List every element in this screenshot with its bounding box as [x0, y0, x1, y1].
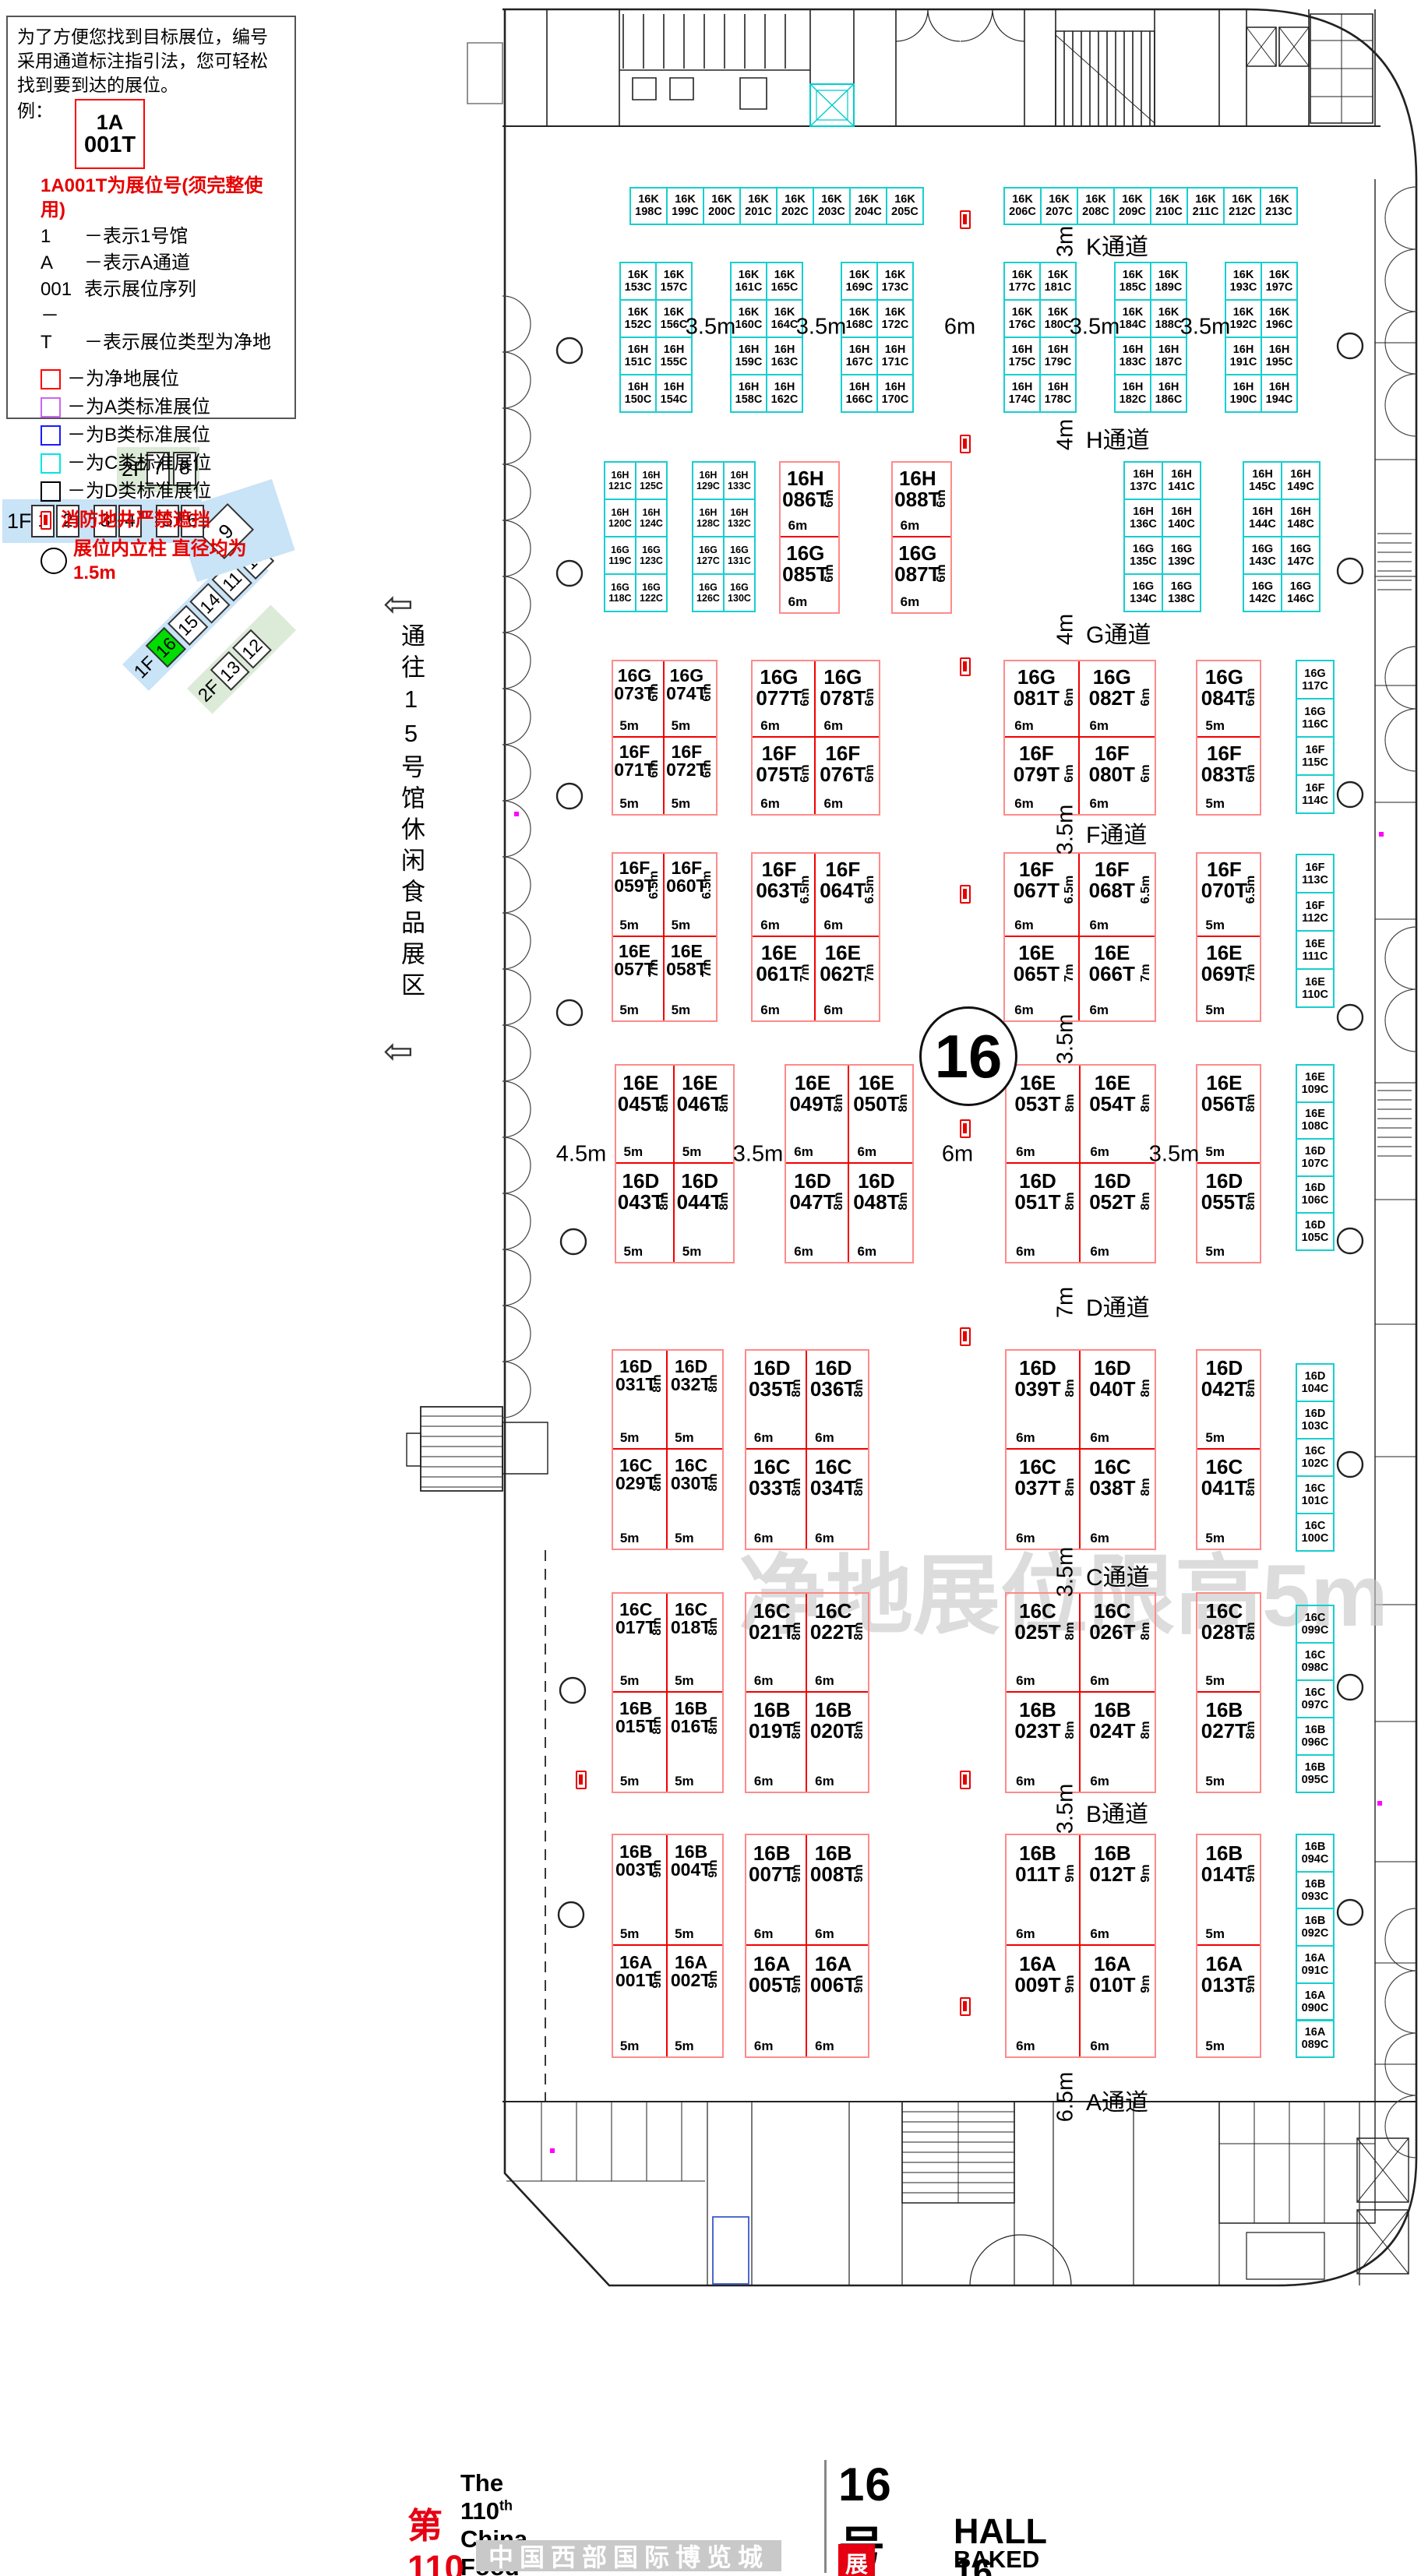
booth-16c101c: 16C101C	[1296, 1475, 1335, 1514]
booth-block: 16C028T8m5m16B027T8m5m	[1196, 1592, 1261, 1793]
booth-16d035t: 16D035T8m6m	[746, 1351, 807, 1450]
booth-16d042t: 16D042T8m5m	[1197, 1351, 1260, 1450]
booth-16f114c: 16F114C	[1296, 774, 1335, 814]
booth-16k202c: 16K202C	[776, 187, 814, 225]
booth-16g146c: 16G146C	[1281, 573, 1321, 612]
booth-16e069t: 16E069T7m5m	[1197, 937, 1260, 1020]
aisle-name-label: K通道	[1086, 227, 1148, 262]
booth-16e046t: 16E046T8m5m	[675, 1066, 733, 1164]
booth-16k177c: 16K177C	[1003, 262, 1041, 301]
booth-16g131c: 16G131C	[723, 536, 756, 575]
booth-block: 16E045T8m5m16E046T8m5m16D043T8m5m16D044T…	[615, 1064, 735, 1263]
booth-16f071t: 16F071T6m5m	[613, 738, 665, 814]
booth-16h154c: 16H154C	[655, 374, 693, 413]
booth-16b093c: 16B093C	[1296, 1871, 1335, 1910]
booth-16e050t: 16E050T8m6m	[849, 1066, 912, 1164]
floorplan-page: 净地展位限高5m 为了方便您找到目标展位，编号采用通道标注指引法，您可轻松找到要…	[0, 0, 1421, 2576]
booth-16a013t: 16A013T9m5m	[1197, 1946, 1260, 2056]
booth-16g135c: 16G135C	[1123, 536, 1163, 575]
booth-16a010t: 16A010T9m6m	[1081, 1946, 1155, 2056]
booth-16c018t: 16C018T8m5m	[668, 1594, 722, 1693]
booth-16k197c: 16K197C	[1261, 262, 1298, 301]
booth-16h190c: 16H190C	[1225, 374, 1262, 413]
booth-16h124c: 16H124C	[635, 499, 668, 537]
booth-16k203c: 16K203C	[813, 187, 851, 225]
booth-16k193c: 16K193C	[1225, 262, 1262, 301]
booth-16b096c: 16B096C	[1296, 1717, 1335, 1756]
booth-16f059t: 16F059T6.5m5m	[613, 854, 665, 937]
booth-16c030t: 16C030T8m5m	[668, 1450, 722, 1549]
booth-16h186c: 16H186C	[1150, 374, 1187, 413]
booth-16g126c: 16G126C	[692, 573, 725, 612]
booth-16a002t: 16A002T9m5m	[668, 1946, 722, 2056]
booth-16e108c: 16E108C	[1296, 1101, 1335, 1140]
gap-width-label: 3.5m	[686, 315, 735, 340]
booth-16b024t: 16B024T8m6m	[1081, 1693, 1155, 1792]
booth-block: 16C017T8m5m16C018T8m5m16B015T8m5m16B016T…	[612, 1592, 724, 1793]
booth-block: 16E049T8m6m16E050T8m6m16D047T8m6m16D048T…	[785, 1064, 914, 1263]
footer-divider	[824, 2460, 827, 2573]
booth-block: 16G077T6m6m16G078T6m6m16F075T6m6m16F076T…	[751, 660, 880, 816]
booth-16c026t: 16C026T8m6m	[1081, 1594, 1155, 1693]
booth-16k199c: 16K199C	[666, 187, 704, 225]
booth-16g143c: 16G143C	[1243, 536, 1282, 575]
booth-16g130c: 16G130C	[723, 573, 756, 612]
booth-16d039t: 16D039T8m6m	[1007, 1351, 1081, 1450]
aisle-width-label: 4m	[1053, 400, 1079, 470]
booth-block: 16G081T6m6m16G082T6m6m16F079T6m6m16F080T…	[1003, 660, 1156, 816]
booth-16k213c: 16K213C	[1260, 187, 1298, 225]
venue-name: 中国西部国际博览城	[476, 2540, 781, 2571]
booth-block: 16F067T6.5m6m16F068T6.5m6m16E065T7m6m16E…	[1003, 852, 1156, 1022]
booth-16e109c: 16E109C	[1296, 1064, 1335, 1103]
aisle-width-label: 7m	[1053, 1267, 1079, 1337]
booth-16d052t: 16D052T8m6m	[1081, 1164, 1155, 1262]
booth-16c098c: 16C098C	[1296, 1642, 1335, 1681]
booth-16e049t: 16E049T8m6m	[786, 1066, 849, 1164]
booth-16k196c: 16K196C	[1261, 299, 1298, 338]
booth-16e056t: 16E056T8m5m	[1197, 1066, 1260, 1164]
booth-16c028t: 16C028T8m5m	[1197, 1594, 1260, 1693]
booth-16d106c: 16D106C	[1296, 1175, 1335, 1214]
aisle-width-label: 3.5m	[1053, 1537, 1079, 1607]
booth-16e054t: 16E054T8m6m	[1081, 1066, 1155, 1164]
gap-width-label: 3.5m	[796, 315, 846, 340]
booth-16b014t: 16B014T9m5m	[1197, 1835, 1260, 1946]
booth-16c022t: 16C022T8m6m	[807, 1594, 868, 1693]
booth-16c025t: 16C025T8m6m	[1007, 1594, 1081, 1693]
booth-16g116c: 16G116C	[1296, 698, 1335, 738]
legend-intro: 为了方便您找到目标展位，编号采用通道标注指引法，您可轻松找到要到达的展位。	[17, 25, 285, 97]
booth-16f064t: 16F064T6.5m6m	[816, 854, 879, 937]
booth-16a009t: 16A009T9m6m	[1007, 1946, 1081, 2056]
booth-16g073t: 16G073T6m5m	[613, 661, 665, 738]
aisle-name-label: G通道	[1086, 615, 1151, 650]
booth-16c102c: 16C102C	[1296, 1438, 1335, 1477]
booth-block: 16B003T9m5m16B004T9m5m16A001T9m5m16A002T…	[612, 1834, 724, 2058]
booth-16g119c: 16G119C	[604, 536, 636, 575]
booth-16d051t: 16D051T8m6m	[1007, 1164, 1081, 1262]
booth-16g127c: 16G127C	[692, 536, 725, 575]
booth-16h149c: 16H149C	[1281, 461, 1321, 500]
booth-16k212c: 16K212C	[1223, 187, 1261, 225]
booth-16f072t: 16F072T6m5m	[665, 738, 716, 814]
booth-16e066t: 16E066T7m6m	[1080, 937, 1155, 1020]
legend-rule: A－表示A通道	[41, 250, 285, 277]
booth-16k205c: 16K205C	[886, 187, 924, 225]
booth-16b004t: 16B004T9m5m	[668, 1835, 722, 1946]
booth-16g139c: 16G139C	[1162, 536, 1201, 575]
legend-type: －为A类标准展位	[41, 395, 285, 419]
booth-16e057t: 16E057T7m5m	[613, 937, 665, 1020]
map-badge: 展位示意图	[838, 2544, 875, 2576]
booth-16b003t: 16B003T9m5m	[613, 1835, 668, 1946]
booth-16f112c: 16F112C	[1296, 892, 1335, 932]
fair-title-cn: 第110届全国糖酒商品交易会	[407, 2497, 464, 2576]
booth-16f070t: 16F070T6.5m5m	[1197, 854, 1260, 937]
booth-16k210c: 16K210C	[1150, 187, 1188, 225]
booth-block: 16D039T8m6m16D040T8m6m16C037T8m6m16C038T…	[1005, 1349, 1156, 1550]
booth-16k185c: 16K185C	[1114, 262, 1151, 301]
gap-width-label: 3.5m	[1180, 315, 1230, 340]
booth-16h155c: 16H155C	[655, 337, 693, 375]
booth-16g087t: 16G087T6m6m	[893, 537, 950, 612]
booth-16k211c: 16K211C	[1187, 187, 1225, 225]
booth-16d104c: 16D104C	[1296, 1363, 1335, 1402]
legend-type: －为净地展位	[41, 367, 285, 391]
booth-16h141c: 16H141C	[1162, 461, 1201, 500]
legend-type: －为C类标准展位	[41, 451, 285, 475]
fire-well-icon	[576, 1771, 587, 1789]
booth-16c099c: 16C099C	[1296, 1605, 1335, 1644]
booth-16d036t: 16D036T8m6m	[807, 1351, 868, 1450]
legend-rule: 001－表示展位序列	[41, 277, 285, 329]
booth-16h179c: 16H179C	[1039, 337, 1077, 375]
booth-16g122c: 16G122C	[635, 573, 668, 612]
booth-16b007t: 16B007T9m6m	[746, 1835, 807, 1946]
booth-16f076t: 16F076T6m6m	[816, 738, 879, 814]
booth-16d105c: 16D105C	[1296, 1212, 1335, 1251]
booth-16c038t: 16C038T8m6m	[1081, 1450, 1155, 1549]
aisle-name-label: B通道	[1086, 1795, 1148, 1829]
aisle-width-label: 3.5m	[1053, 1004, 1079, 1074]
booth-16g078t: 16G078T6m6m	[816, 661, 879, 738]
legend-type: －为D类标准展位	[41, 479, 285, 503]
booth-16f115c: 16F115C	[1296, 736, 1335, 776]
booth-16f083t: 16F083T6m5m	[1197, 738, 1260, 814]
booth-block: 16H088T6m6m16G087T6m6m	[891, 461, 952, 614]
legend-panel: 为了方便您找到目标展位，编号采用通道标注指引法，您可轻松找到要到达的展位。 例：…	[6, 16, 296, 419]
booth-16b019t: 16B019T8m6m	[746, 1693, 807, 1792]
fire-well-icon	[960, 1997, 971, 2016]
aisle-name-label: A通道	[1086, 2083, 1148, 2117]
fire-well-icon	[960, 657, 971, 676]
booth-16a006t: 16A006T9m6m	[807, 1946, 868, 2056]
booth-16d103c: 16D103C	[1296, 1401, 1335, 1440]
booth-16h121c: 16H121C	[604, 461, 636, 500]
aisle-width-label: 3.5m	[1053, 795, 1079, 865]
booth-16c097c: 16C097C	[1296, 1679, 1335, 1718]
booth-block: 16F063T6.5m6m16F064T6.5m6m16E061T7m6m16E…	[751, 852, 880, 1022]
booth-16h182c: 16H182C	[1114, 374, 1151, 413]
booth-16h140c: 16H140C	[1162, 499, 1201, 537]
booth-16h125c: 16H125C	[635, 461, 668, 500]
hall-number-circle: 16	[919, 1006, 1017, 1106]
booth-16h183c: 16H183C	[1114, 337, 1151, 375]
booth-16b092c: 16B092C	[1296, 1908, 1335, 1947]
booth-16d048t: 16D048T8m6m	[849, 1164, 912, 1262]
booth-16a001t: 16A001T9m5m	[613, 1946, 668, 2056]
legend-example-label: 例：	[17, 99, 53, 123]
booth-16h163c: 16H163C	[766, 337, 803, 375]
booth-16a091c: 16A091C	[1296, 1945, 1335, 1984]
pillar-icon	[41, 548, 67, 574]
booth-16c037t: 16C037T8m6m	[1007, 1450, 1081, 1549]
booth-16k173c: 16K173C	[876, 262, 914, 301]
legend-rules: 1－表示1号馆A－表示A通道001－表示展位序列T－表示展位类型为净地	[17, 224, 285, 356]
booth-16b094c: 16B094C	[1296, 1834, 1335, 1873]
booth-16h086t: 16H086T6m6m	[781, 463, 838, 537]
booth-block: 16D042T8m5m16C041T8m5m	[1196, 1349, 1261, 1550]
fire-well-icon	[960, 1771, 971, 1789]
booth-16d044t: 16D044T8m5m	[675, 1164, 733, 1262]
booth-16e110c: 16E110C	[1296, 968, 1335, 1008]
booth-16k208c: 16K208C	[1077, 187, 1115, 225]
booth-16g085t: 16G085T6m6m	[781, 537, 838, 612]
booth-16g084t: 16G084T6m5m	[1197, 661, 1260, 738]
booth-16h194c: 16H194C	[1261, 374, 1298, 413]
booth-16a005t: 16A005T9m6m	[746, 1946, 807, 2056]
booth-16k198c: 16K198C	[629, 187, 668, 225]
booth-16h175c: 16H175C	[1003, 337, 1041, 375]
legend-booth-note: 1A001T为展位号(须完整使用)	[41, 174, 285, 222]
booth-16e053t: 16E053T8m6m	[1007, 1066, 1081, 1164]
booth-block: 16C021T8m6m16C022T8m6m16B019T8m6m16B020T…	[745, 1592, 869, 1793]
fire-well-icon	[960, 1119, 971, 1138]
booth-16h129c: 16H129C	[692, 461, 725, 500]
booth-16g138c: 16G138C	[1162, 573, 1201, 612]
fire-well-icon	[960, 210, 971, 229]
booth-16h145c: 16H145C	[1243, 461, 1282, 500]
booth-16k169c: 16K169C	[841, 262, 878, 301]
booth-16h088t: 16H088T6m6m	[893, 463, 950, 537]
booth-16d032t: 16D032T8m5m	[668, 1351, 722, 1450]
booth-16d043t: 16D043T8m5m	[616, 1164, 675, 1262]
booth-16h187c: 16H187C	[1150, 337, 1187, 375]
booth-16b011t: 16B011T9m6m	[1007, 1835, 1081, 1946]
booth-16h167c: 16H167C	[841, 337, 878, 375]
booth-16f068t: 16F068T6.5m6m	[1080, 854, 1155, 937]
legend-type: －为B类标准展位	[41, 423, 285, 447]
booth-16c041t: 16C041T8m5m	[1197, 1450, 1260, 1549]
aisle-width-label: 4m	[1053, 594, 1079, 664]
booth-16k153c: 16K153C	[619, 262, 657, 301]
booth-block: 16B014T9m5m16A013T9m5m	[1196, 1834, 1261, 2058]
aisle-name-label: C通道	[1086, 1558, 1150, 1592]
booth-16h159c: 16H159C	[730, 337, 767, 375]
booth-16h132c: 16H132C	[723, 499, 756, 537]
booth-block: 16B007T9m6m16B008T9m6m16A005T9m6m16A006T…	[745, 1834, 869, 2058]
booth-16d107c: 16D107C	[1296, 1138, 1335, 1177]
aisle-width-label: 3m	[1053, 206, 1079, 277]
aisle-width-label: 3.5m	[1053, 1774, 1079, 1844]
booth-16d055t: 16D055T8m5m	[1197, 1164, 1260, 1262]
legend-example-booth: 1A 001T	[75, 99, 145, 169]
booth-16h137c: 16H137C	[1123, 461, 1163, 500]
booth-16g147c: 16G147C	[1281, 536, 1321, 575]
booth-16d031t: 16D031T8m5m	[613, 1351, 668, 1450]
booth-16f080t: 16F080T6m6m	[1080, 738, 1155, 814]
legend-rule: 1－表示1号馆	[41, 224, 285, 250]
booth-16k161c: 16K161C	[730, 262, 767, 301]
booth-16h120c: 16H120C	[604, 499, 636, 537]
fire-well-icon	[960, 885, 971, 904]
booth-16g081t: 16G081T6m6m	[1005, 661, 1080, 738]
booth-16k157c: 16K157C	[655, 262, 693, 301]
fire-well-icon	[41, 511, 51, 530]
booth-16h136c: 16H136C	[1123, 499, 1163, 537]
booth-16f063t: 16F063T6.5m6m	[753, 854, 816, 937]
booth-16g082t: 16G082T6m6m	[1080, 661, 1155, 738]
legend-rule: T－表示展位类型为净地	[41, 329, 285, 356]
booth-16h151c: 16H151C	[619, 337, 657, 375]
booth-16g074t: 16G074T6m5m	[665, 661, 716, 738]
booth-16k152c: 16K152C	[619, 299, 657, 338]
booth-16h191c: 16H191C	[1225, 337, 1262, 375]
arrow-left-icon: ⇦	[383, 1030, 414, 1072]
booth-block: 16F070T6.5m5m16E069T7m5m	[1196, 852, 1261, 1022]
booth-block: 16H086T6m6m16G085T6m6m	[779, 461, 840, 614]
gap-width-label: 6m	[944, 315, 975, 340]
booth-16e111c: 16E111C	[1296, 930, 1335, 970]
booth-16e062t: 16E062T7m6m	[816, 937, 879, 1020]
booth-block: 16E056T8m5m16D055T8m5m	[1196, 1064, 1261, 1263]
booth-16a090c: 16A090C	[1296, 1982, 1335, 2021]
booth-16b016t: 16B016T8m5m	[668, 1693, 722, 1792]
aisle-name-label: F通道	[1086, 816, 1147, 850]
minimap-1f-label: 1F	[7, 509, 32, 534]
booth-16k209c: 16K209C	[1113, 187, 1151, 225]
booth-16h170c: 16H170C	[876, 374, 914, 413]
booth-16h144c: 16H144C	[1243, 499, 1282, 537]
booth-16b008t: 16B008T9m6m	[807, 1835, 868, 1946]
gap-width-label: 6m	[942, 1142, 973, 1168]
booth-16h174c: 16H174C	[1003, 374, 1041, 413]
fire-well-icon	[960, 1327, 971, 1346]
gap-width-label: 4.5m	[556, 1142, 606, 1168]
booth-16k204c: 16K204C	[849, 187, 887, 225]
gap-width-label: 3.5m	[1070, 315, 1120, 340]
aisle-name-label: D通道	[1086, 1288, 1150, 1323]
aisle-width-label: 6.5m	[1053, 2062, 1079, 2132]
booth-16g118c: 16G118C	[604, 573, 636, 612]
booth-block: 16B011T9m6m16B012T9m6m16A009T9m6m16A010T…	[1005, 1834, 1156, 2058]
legend-pillar-note: 展位内立柱 直径均为1.5m	[41, 537, 285, 585]
arrow-left-icon: ⇦	[383, 583, 414, 625]
booth-16g123c: 16G123C	[635, 536, 668, 575]
booth-16k201c: 16K201C	[739, 187, 777, 225]
booth-16h195c: 16H195C	[1261, 337, 1298, 375]
booth-16h128c: 16H128C	[692, 499, 725, 537]
booth-16k165c: 16K165C	[766, 262, 803, 301]
booth-16f075t: 16F075T6m6m	[753, 738, 816, 814]
booth-16g134c: 16G134C	[1123, 573, 1163, 612]
booth-16k200c: 16K200C	[703, 187, 741, 225]
booth-block: 16D035T8m6m16D036T8m6m16C033T8m6m16C034T…	[745, 1349, 869, 1550]
side-note-to-hall15: 通往15号馆休闲食品展区	[393, 623, 428, 1003]
booth-16h162c: 16H162C	[766, 374, 803, 413]
legend-fire-note: 消防地井严禁遮挡	[41, 508, 285, 532]
booth-block: 16D031T8m5m16D032T8m5m16C029T8m5m16C030T…	[612, 1349, 724, 1550]
booth-16f113c: 16F113C	[1296, 854, 1335, 893]
booth-16f060t: 16F060T6.5m5m	[665, 854, 716, 937]
booth-16g142c: 16G142C	[1243, 573, 1282, 612]
booth-16g077t: 16G077T6m6m	[753, 661, 816, 738]
booth-16c021t: 16C021T8m6m	[746, 1594, 807, 1693]
fire-well-icon	[960, 435, 971, 453]
booth-16h171c: 16H171C	[876, 337, 914, 375]
booth-16h148c: 16H148C	[1281, 499, 1321, 537]
booth-16c017t: 16C017T8m5m	[613, 1594, 668, 1693]
booth-16f067t: 16F067T6.5m6m	[1005, 854, 1080, 937]
booth-16h158c: 16H158C	[730, 374, 767, 413]
booth-16g117c: 16G117C	[1296, 660, 1335, 700]
gap-width-label: 3.5m	[1149, 1142, 1199, 1168]
booth-block: 16C025T8m6m16C026T8m6m16B023T8m6m16B024T…	[1005, 1592, 1156, 1793]
aisle-name-label: H通道	[1086, 421, 1150, 455]
booth-16b027t: 16B027T8m5m	[1197, 1693, 1260, 1792]
booth-block: 16E053T8m6m16E054T8m6m16D051T8m6m16D052T…	[1005, 1064, 1156, 1263]
booth-block: 16G084T6m5m16F083T6m5m	[1196, 660, 1261, 816]
booth-16h166c: 16H166C	[841, 374, 878, 413]
booth-16b095c: 16B095C	[1296, 1754, 1335, 1793]
booth-16d040t: 16D040T8m6m	[1081, 1351, 1155, 1450]
booth-block: 16F059T6.5m5m16F060T6.5m5m16E057T7m5m16E…	[612, 852, 718, 1022]
booth-16c029t: 16C029T8m5m	[613, 1450, 668, 1549]
booth-16e061t: 16E061T7m6m	[753, 937, 816, 1020]
booth-16e045t: 16E045T8m5m	[616, 1066, 675, 1164]
booth-16h133c: 16H133C	[723, 461, 756, 500]
booth-16b015t: 16B015T8m5m	[613, 1693, 668, 1792]
booth-16h150c: 16H150C	[619, 374, 657, 413]
booth-block: 16G073T6m5m16G074T6m5m16F071T6m5m16F072T…	[612, 660, 718, 816]
booth-16c100c: 16C100C	[1296, 1513, 1335, 1552]
hall-subtitle-en: BAKED FOOD	[954, 2546, 1039, 2576]
legend-types: －为净地展位－为A类标准展位－为B类标准展位－为C类标准展位－为D类标准展位	[17, 367, 285, 503]
booth-16b020t: 16B020T8m6m	[807, 1693, 868, 1792]
booth-16a089c: 16A089C	[1296, 2020, 1335, 2059]
booth-16c033t: 16C033T8m6m	[746, 1450, 807, 1549]
booth-16k176c: 16K176C	[1003, 299, 1041, 338]
booth-16b012t: 16B012T9m6m	[1081, 1835, 1155, 1946]
booth-16d047t: 16D047T8m6m	[786, 1164, 849, 1262]
gap-width-label: 3.5m	[733, 1142, 783, 1168]
booth-16c034t: 16C034T8m6m	[807, 1450, 868, 1549]
booth-16k172c: 16K172C	[876, 299, 914, 338]
booth-16e058t: 16E058T7m5m	[665, 937, 716, 1020]
booth-16k189c: 16K189C	[1150, 262, 1187, 301]
booth-16k206c: 16K206C	[1003, 187, 1042, 225]
